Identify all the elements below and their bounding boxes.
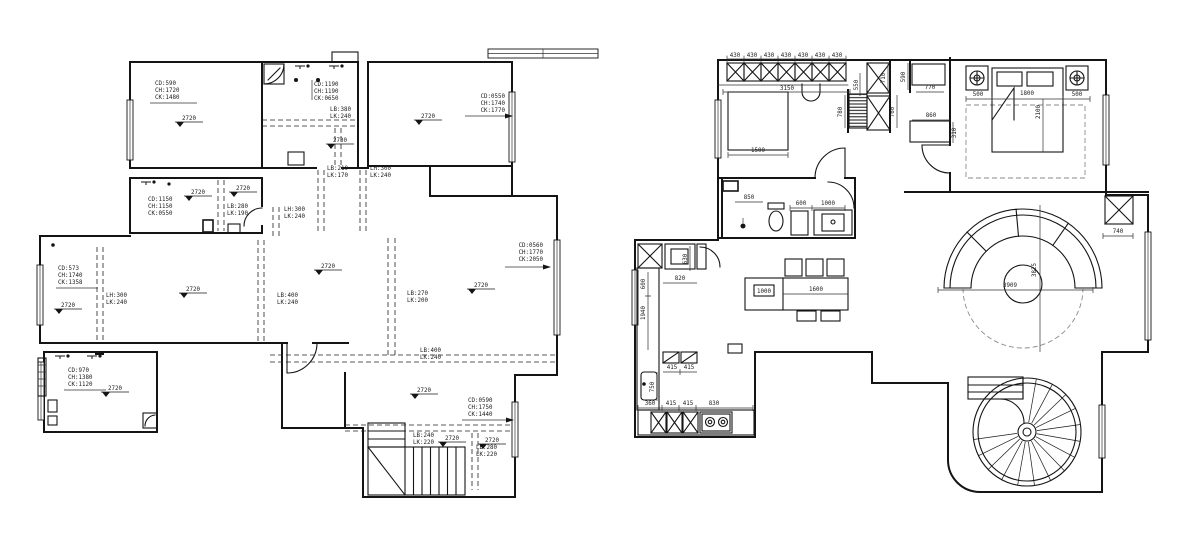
svg-text:LB:240: LB:240: [413, 433, 434, 439]
svg-text:CK:1770: CK:1770: [481, 108, 506, 114]
svg-text:310: 310: [952, 127, 958, 138]
svg-text:780: 780: [838, 106, 844, 117]
svg-text:CD:970: CD:970: [68, 368, 89, 374]
svg-text:2720: 2720: [485, 438, 499, 444]
svg-text:430: 430: [798, 53, 809, 59]
svg-text:CK:1358: CK:1358: [58, 280, 83, 286]
svg-text:600: 600: [796, 201, 807, 207]
door-arc: [922, 145, 950, 173]
svg-text:740: 740: [1113, 229, 1124, 235]
bath-cabinet: [791, 211, 808, 235]
svg-text:LB:400: LB:400: [277, 293, 298, 299]
svg-text:CH:1190: CH:1190: [314, 89, 339, 95]
wall-light-icon: [329, 64, 344, 69]
svg-text:2720: 2720: [321, 264, 335, 270]
appliance: [203, 220, 213, 232]
floor-plans-svg: CD:590CH:1720CK:1480CD:1190CH:1190CK:065…: [0, 0, 1200, 550]
svg-text:CD:0550: CD:0550: [481, 94, 506, 100]
svg-text:430: 430: [815, 53, 826, 59]
svg-text:LH:300: LH:300: [370, 166, 391, 172]
dimension-labels-right: 4304304304304304304303150150055078071059…: [641, 53, 1124, 407]
wall-fixture: [95, 351, 104, 355]
svg-text:1600: 1600: [809, 287, 823, 293]
lamp-icon: [1070, 71, 1084, 85]
svg-text:830: 830: [709, 401, 720, 407]
dresser: [912, 64, 945, 85]
svg-text:LH:300: LH:300: [284, 207, 305, 213]
svg-text:2720: 2720: [236, 186, 250, 192]
fixture: [48, 400, 57, 412]
svg-text:1800: 1800: [1020, 91, 1034, 97]
svg-text:1500: 1500: [751, 148, 765, 154]
svg-text:600: 600: [641, 278, 647, 289]
base-cabinets: [651, 412, 698, 433]
svg-text:CH:1720: CH:1720: [155, 88, 180, 94]
wall-light-icon: [295, 64, 310, 69]
svg-text:LK:170: LK:170: [327, 173, 348, 179]
shower-head-icon: [741, 218, 746, 229]
svg-text:CH:1750: CH:1750: [468, 405, 493, 411]
svg-text:360: 360: [645, 401, 656, 407]
niche: [723, 181, 738, 191]
svg-text:2720: 2720: [186, 287, 200, 293]
svg-text:LK:220: LK:220: [413, 440, 434, 446]
svg-text:CK:1480: CK:1480: [155, 95, 180, 101]
svg-text:3825: 3825: [1032, 263, 1038, 277]
svg-text:2100: 2100: [1036, 105, 1042, 119]
svg-text:2730: 2730: [333, 138, 347, 144]
svg-text:LB:280: LB:280: [227, 204, 248, 210]
vanity-sink: [814, 210, 852, 235]
svg-text:3150: 3150: [780, 86, 794, 92]
svg-text:1000: 1000: [821, 201, 835, 207]
svg-text:550: 550: [854, 79, 860, 90]
spiral-staircase: [968, 377, 1081, 486]
svg-text:CD:0590: CD:0590: [468, 398, 493, 404]
pillow: [997, 72, 1022, 86]
svg-text:770: 770: [925, 85, 936, 91]
door-arc: [815, 148, 845, 178]
ceiling-light: [294, 78, 298, 82]
pillow: [1027, 72, 1053, 86]
svg-text:630: 630: [683, 253, 689, 264]
svg-text:430: 430: [781, 53, 792, 59]
svg-text:CD:1190: CD:1190: [314, 82, 339, 88]
svg-text:2720: 2720: [182, 116, 196, 122]
svg-text:820: 820: [675, 276, 686, 282]
master-bedroom: [910, 64, 1088, 178]
svg-text:LB:280: LB:280: [476, 445, 497, 451]
rug-dashed: [966, 105, 1085, 178]
svg-text:3909: 3909: [1003, 283, 1017, 289]
svg-text:CK:2050: CK:2050: [519, 257, 544, 263]
svg-text:430: 430: [747, 53, 758, 59]
service-shafts: [849, 63, 1133, 224]
svg-text:430: 430: [832, 53, 843, 59]
svg-text:2720: 2720: [445, 436, 459, 442]
wall-light-icon: [87, 354, 102, 359]
svg-text:LK:190: LK:190: [227, 211, 248, 217]
svg-text:750: 750: [650, 381, 656, 392]
ceiling-beams-left: [97, 120, 555, 490]
shower-corner: [264, 64, 284, 84]
svg-text:CK:1440: CK:1440: [468, 412, 493, 418]
svg-text:415: 415: [667, 365, 678, 371]
bedroom2: [728, 84, 845, 178]
svg-text:1000: 1000: [757, 289, 771, 295]
living-room: [944, 209, 1102, 348]
svg-text:430: 430: [764, 53, 775, 59]
svg-text:415: 415: [683, 401, 694, 407]
curved-sofa: [944, 209, 1102, 288]
svg-text:500: 500: [1072, 92, 1083, 98]
duct-shaft: [332, 52, 358, 62]
ceiling-light: [51, 243, 55, 247]
toilet: [768, 203, 784, 231]
svg-text:415: 415: [684, 365, 695, 371]
svg-text:LK:240: LK:240: [330, 114, 351, 120]
svg-text:415: 415: [666, 401, 677, 407]
svg-text:LB:210: LB:210: [327, 166, 348, 172]
svg-text:760: 760: [890, 106, 896, 117]
svg-text:2720: 2720: [61, 303, 75, 309]
wall-light-icon: [141, 180, 156, 185]
svg-text:CK:0550: CK:0550: [148, 211, 173, 217]
svg-text:LH:300: LH:300: [106, 293, 127, 299]
svg-text:CH:1740: CH:1740: [481, 101, 506, 107]
wall-handle: [802, 84, 820, 101]
svg-text:LK:220: LK:220: [476, 452, 497, 458]
walls-left: [40, 62, 557, 497]
base-counter: [638, 410, 754, 435]
svg-text:2720: 2720: [417, 388, 431, 394]
svg-text:710: 710: [881, 72, 887, 83]
svg-text:850: 850: [744, 195, 755, 201]
svg-text:CD:0560: CD:0560: [519, 243, 544, 249]
svg-text:860: 860: [926, 113, 937, 119]
svg-text:CD:573: CD:573: [58, 266, 79, 272]
cabinet: [288, 152, 304, 165]
svg-text:CH:1770: CH:1770: [519, 250, 544, 256]
svg-text:CH:1150: CH:1150: [148, 204, 173, 210]
svg-text:CK:0650: CK:0650: [314, 96, 339, 102]
hob: [700, 412, 732, 433]
svg-text:500: 500: [973, 92, 984, 98]
chimney-bump: [728, 344, 742, 353]
svg-text:2720: 2720: [474, 283, 488, 289]
svg-text:LK:200: LK:200: [407, 298, 428, 304]
windows-left: [37, 49, 598, 457]
svg-text:CH:1740: CH:1740: [58, 273, 83, 279]
svg-text:CH:1380: CH:1380: [68, 375, 93, 381]
svg-text:LB:380: LB:380: [330, 107, 351, 113]
wall-light-icon: [55, 354, 70, 359]
svg-text:2720: 2720: [191, 190, 205, 196]
floor-plan-right: 4304304304304304304303150150055078071059…: [632, 53, 1151, 492]
bed-secondary: [728, 92, 788, 150]
wall-cabinets: [663, 352, 697, 363]
svg-text:LK:240: LK:240: [277, 300, 298, 306]
ceiling-light: [167, 182, 170, 185]
svg-text:2720: 2720: [421, 114, 435, 120]
svg-text:LK:240: LK:240: [106, 300, 127, 306]
cabinet: [665, 244, 695, 269]
doors-left: [143, 208, 317, 428]
svg-text:LB:400: LB:400: [420, 348, 441, 354]
appliance: [228, 224, 240, 233]
floor-plan-left: CD:590CH:1720CK:1480CD:1190CH:1190CK:065…: [37, 49, 598, 497]
dresser: [910, 121, 950, 142]
rug-arc-dashed: [963, 288, 1083, 348]
fixture: [48, 416, 57, 425]
lamp-icon: [970, 71, 984, 85]
svg-text:LB:270: LB:270: [407, 291, 428, 297]
svg-text:CD:590: CD:590: [155, 81, 176, 87]
svg-text:1940: 1940: [641, 306, 647, 320]
svg-text:590: 590: [901, 71, 907, 82]
walls-right: [635, 58, 1148, 492]
drawing-canvas: CD:590CH:1720CK:1480CD:1190CH:1190CK:065…: [0, 0, 1200, 550]
blanket-fold: [992, 88, 1014, 120]
svg-text:CD:1150: CD:1150: [148, 197, 173, 203]
svg-text:430: 430: [730, 53, 741, 59]
svg-text:LK:240: LK:240: [420, 355, 441, 361]
svg-text:CK:1120: CK:1120: [68, 382, 93, 388]
svg-text:LK:240: LK:240: [370, 173, 391, 179]
svg-text:LK:240: LK:240: [284, 214, 305, 220]
svg-text:2720: 2720: [108, 386, 122, 392]
door-arc: [700, 247, 720, 267]
